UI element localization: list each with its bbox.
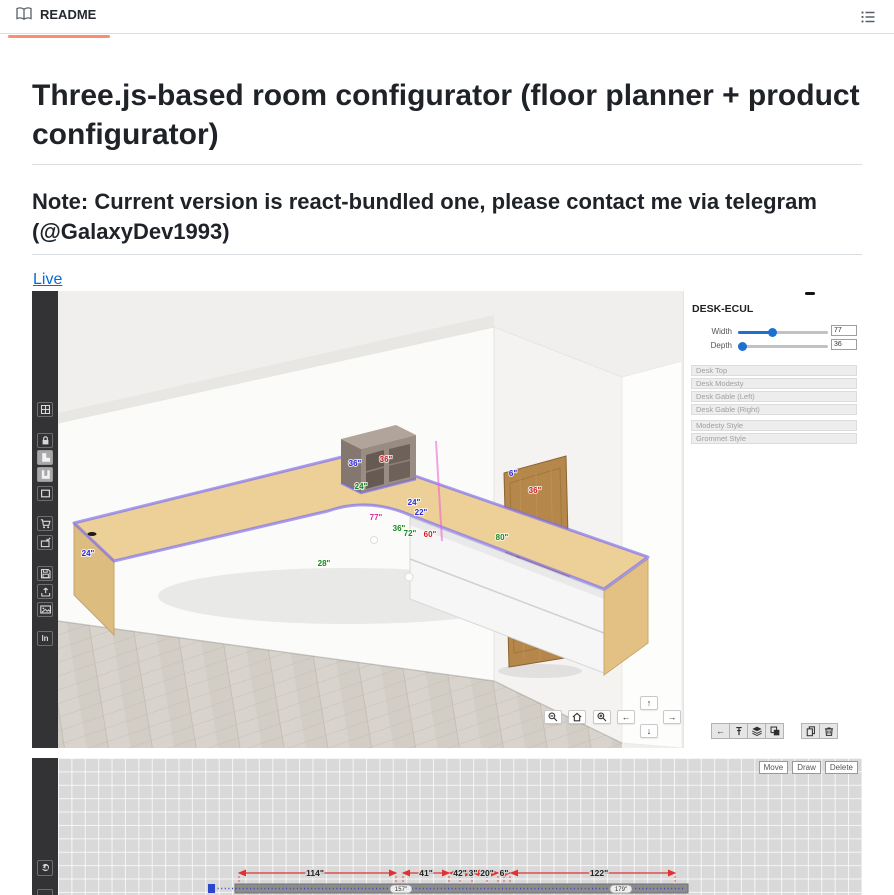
home-view-button [568, 710, 586, 724]
measurement-label: 122" [590, 868, 608, 878]
bring-front-button [765, 723, 784, 739]
partial-tool-icon [37, 889, 53, 895]
grid-icon [37, 402, 53, 417]
copy-icon [805, 725, 817, 737]
pin-icon [733, 725, 745, 737]
layers-icon [751, 725, 763, 737]
dim-label: 36" [529, 486, 542, 495]
screenshot-3d-configurator[interactable]: ln [32, 291, 862, 748]
dim-label: 6" [509, 469, 517, 478]
dim-label: 24" [355, 482, 368, 491]
part-row: Desk Gable (Left) [691, 391, 857, 402]
tab-readme[interactable]: README [16, 6, 96, 22]
style-row: Modesty Style [691, 420, 857, 431]
measurement-label: 3" [469, 868, 478, 878]
scene-node-sphere [371, 536, 378, 543]
trash-icon [823, 725, 835, 737]
measurement-label: 20" [480, 868, 494, 878]
depth-slider-row: Depth [684, 341, 863, 351]
measurement-label: 114" [306, 868, 324, 878]
dim-label: 28" [318, 559, 331, 568]
part-row: Desk Top [691, 365, 857, 376]
part-list: Desk Top Desk Modesty Desk Gable (Left) … [691, 365, 857, 417]
orbit-view-icon [37, 860, 53, 876]
save-icon [37, 566, 53, 581]
measurement-label: 41" [419, 868, 433, 878]
style-row: Grommet Style [691, 433, 857, 444]
cart-icon [37, 516, 53, 531]
wall-length-label: 179" [615, 887, 627, 893]
note-heading: Note: Current version is react-bundled o… [32, 187, 862, 255]
wall-length-label: 157" [395, 887, 407, 893]
dim-label: 36" [380, 455, 393, 464]
copy-button [801, 723, 820, 739]
part-row: Desk Gable (Right) [691, 404, 857, 415]
pan-down-button: ↓ [640, 724, 658, 738]
book-icon [16, 6, 32, 22]
zoom-in-button [593, 710, 611, 724]
grommet-hole [88, 532, 97, 536]
planner-toolbar [32, 758, 58, 895]
planner-drawing: 114" 41" 42" 3" 20" 6" 122" 157" 179" [58, 758, 862, 895]
width-value-input [831, 325, 857, 336]
room-3d-scene: 36" 36" 24" 24" 22" 77" 36" 72" 60" 24" … [58, 291, 683, 748]
depth-label: Depth [684, 341, 732, 350]
product-config-panel: DESK-ECUL Width Depth Desk Top De [683, 291, 862, 748]
pan-up-button: ↑ [640, 696, 658, 710]
dim-label: 36" [349, 459, 362, 468]
page-title: Three.js-based room configurator (floor … [32, 76, 862, 165]
pan-left-button: ← [617, 710, 635, 724]
arrow-left-icon: ← [716, 726, 725, 736]
dim-label: 60" [424, 530, 437, 539]
zoom-out-icon [547, 711, 559, 723]
width-label: Width [684, 327, 732, 336]
screenshot-icon [37, 602, 53, 617]
clipboard-buttons [801, 723, 837, 739]
u-room-shape-icon [37, 467, 53, 482]
tab-readme-label: README [40, 7, 96, 22]
rect-room-shape-icon [37, 486, 53, 501]
undo-button: ← [711, 723, 730, 739]
active-tab-underline [8, 35, 110, 38]
list-icon [860, 9, 876, 25]
layers-button [747, 723, 766, 739]
zoom-in-icon [596, 711, 608, 723]
l-room-shape-icon [37, 450, 53, 465]
depth-slider-thumb [738, 342, 747, 351]
dim-label: 77" [370, 513, 383, 522]
measurement-label: 6" [500, 868, 509, 878]
import-model-icon [37, 535, 53, 550]
scene-node-sphere [405, 573, 413, 581]
arrow-up-icon: ↑ [647, 698, 652, 708]
panel-collapse-dash [805, 292, 815, 295]
style-list: Modesty Style Grommet Style [691, 420, 857, 446]
lock-icon [37, 433, 53, 448]
arrow-down-icon: ↓ [647, 726, 652, 736]
width-slider-thumb [768, 328, 777, 337]
arrow-right-icon: → [668, 712, 677, 722]
dim-label: 80" [496, 533, 509, 542]
screenshot-2d-floor-planner[interactable]: Move Draw Delete [32, 758, 862, 895]
planner-canvas: Move Draw Delete [58, 758, 862, 895]
readme-header: README [0, 0, 894, 34]
camera-nav-controls: ← ↑ ↓ → [544, 696, 683, 746]
object-action-buttons: ← [711, 723, 783, 739]
dim-label: 24" [82, 549, 95, 558]
width-slider-row: Width [684, 327, 863, 337]
outline-list-button[interactable] [858, 7, 878, 27]
dim-label: 72" [404, 529, 417, 538]
configurator-toolbar: ln [32, 291, 58, 748]
home-icon [571, 711, 583, 723]
room-3d-viewport: 36" 36" 24" 24" 22" 77" 36" 72" 60" 24" … [58, 291, 683, 748]
depth-slider [738, 345, 828, 348]
ln-icon: ln [37, 631, 53, 646]
readme-content: Three.js-based room configurator (floor … [0, 76, 894, 895]
part-row: Desk Modesty [691, 378, 857, 389]
arrow-left-icon: ← [622, 712, 631, 722]
measurement-label: 42" [453, 868, 467, 878]
wall-endpoint-handle [208, 884, 215, 893]
stack-squares-icon [769, 725, 781, 737]
upload-icon [37, 584, 53, 599]
pin-button [729, 723, 748, 739]
dim-label: 24" [408, 498, 421, 507]
dim-label: 22" [415, 508, 428, 517]
live-link[interactable]: Live [33, 271, 62, 288]
zoom-out-button [544, 710, 562, 724]
product-name: DESK-ECUL [692, 303, 753, 315]
depth-value-input [831, 339, 857, 350]
width-slider [738, 331, 828, 334]
pan-right-button: → [663, 710, 681, 724]
delete-button [819, 723, 838, 739]
